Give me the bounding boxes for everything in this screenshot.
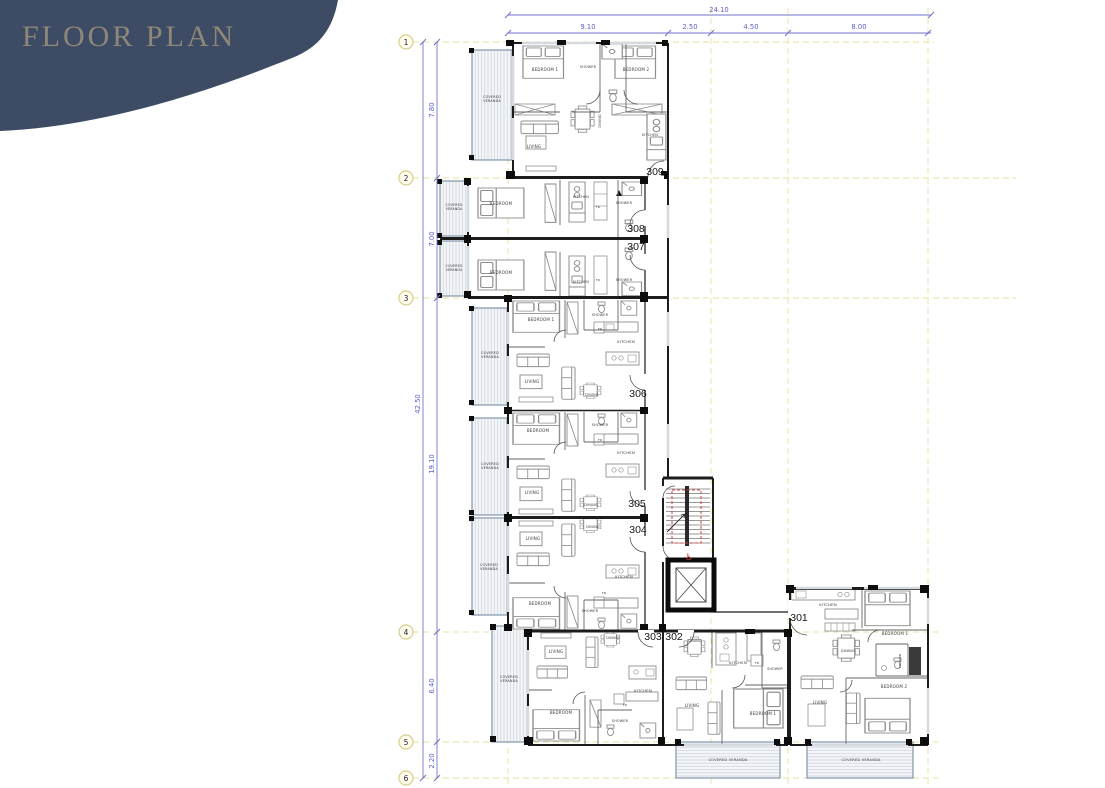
- unit-number-302: 302: [665, 631, 683, 643]
- room-label: SHOWER: [592, 313, 609, 317]
- unit-number-301: 301: [790, 612, 808, 624]
- room-label: BEDROOM 1: [750, 711, 777, 716]
- room-label: LIVING: [526, 536, 541, 541]
- room-label: BEDROOM 2: [623, 67, 650, 72]
- room-label: COVEREDVERANDA: [481, 351, 499, 359]
- room-label: COVEREDVERANDA: [500, 675, 518, 683]
- room-label: FR: [755, 661, 759, 665]
- room-label: LIVING: [813, 700, 828, 705]
- room-label: DINING: [606, 636, 620, 640]
- room-label: DINING: [841, 649, 855, 653]
- room-label: COVERED VERANDA: [841, 758, 880, 762]
- dimension-label: 4.50: [743, 23, 758, 31]
- room-label: SHOWER: [616, 278, 633, 282]
- room-label: COVEREDVERANDA: [480, 563, 498, 571]
- room-label: KITCHEN: [634, 688, 652, 693]
- room-label: LIVING: [685, 703, 700, 708]
- dimension-label: 24.10: [709, 6, 728, 14]
- dimension-label: 2.20: [428, 753, 436, 768]
- room-label: SHOWER: [616, 201, 633, 205]
- room-label: KITCHEN: [819, 602, 837, 607]
- room-label: FR: [623, 703, 627, 707]
- room-label: SHOWER: [592, 423, 609, 427]
- room-label: DINING: [585, 393, 599, 397]
- dimension-label: 2.50: [682, 23, 697, 31]
- unit-number-303: 303: [644, 631, 662, 643]
- unit-number-305: 305: [628, 498, 646, 510]
- room-label: COVEREDVERANDA: [481, 462, 499, 470]
- room-label: DINING: [688, 639, 702, 643]
- wheelchair-accessible-icon: ♿: [685, 553, 693, 563]
- page-title: FLOOR PLAN: [22, 20, 282, 54]
- elevator: [668, 560, 714, 610]
- unit-number-306: 306: [629, 388, 647, 400]
- room-label: BEDROOM 1: [882, 631, 909, 636]
- room-label: KITCHEN: [615, 574, 633, 579]
- room-label: SHOWER: [898, 654, 902, 669]
- room-label: KITCHEN: [573, 195, 589, 199]
- room-label: LIVING: [549, 649, 564, 654]
- room-label: KITCHEN: [729, 660, 747, 665]
- room-label: DINING: [598, 114, 602, 128]
- room-label: COVEREDVERANDA: [446, 203, 464, 211]
- dimension-label: 19.10: [428, 454, 436, 473]
- room-label: BEDROOM: [527, 428, 550, 433]
- floor-plan-page: BEDROOM 1SHOWERBEDROOM 2COVEREDVERANDADI…: [0, 0, 1105, 788]
- grid-bubble-label-3: 3: [404, 294, 409, 303]
- room-label: FR: [602, 591, 606, 595]
- dimension-label: 7.00: [428, 231, 436, 246]
- dimension-label: 8.00: [851, 23, 866, 31]
- room-label: BEDROOM 1: [528, 317, 555, 322]
- room-label: BEDROOM: [550, 710, 573, 715]
- room-label: BEDROOM 2: [881, 684, 908, 689]
- title-blob: FLOOR PLAN: [0, 0, 400, 150]
- grid-bubble-label-2: 2: [404, 174, 409, 183]
- room-label: LIVING: [527, 144, 542, 149]
- room-label: DINING: [586, 525, 600, 529]
- room-label: BEDROOM 1: [532, 67, 559, 72]
- room-label: SHOWER: [580, 65, 597, 69]
- stair-stringer: [685, 486, 689, 546]
- unit-number-309: 309: [646, 166, 664, 178]
- grid-bubble-label-4: 4: [404, 628, 409, 637]
- room-label: KITCHEN: [617, 450, 635, 455]
- room-label: COVEREDVERANDA: [483, 95, 501, 103]
- room-label: KITCHEN: [573, 280, 589, 284]
- room-label: DINING: [584, 503, 598, 507]
- plan-icons: ♿: [685, 553, 693, 563]
- room-label: FR: [598, 438, 602, 442]
- unit-number-307: 307: [627, 241, 645, 253]
- dimension-label: 6.40: [428, 678, 436, 693]
- room-label: BEDROOM: [490, 270, 513, 275]
- room-label: KITCHEN: [617, 339, 635, 344]
- room-label: FR: [596, 278, 600, 282]
- room-label: SHOWER: [767, 667, 783, 671]
- unit-number-308: 308: [627, 223, 645, 235]
- room-label: LIVING: [525, 379, 540, 384]
- dimension-label: 9.10: [580, 23, 595, 31]
- grid-bubble-label-5: 5: [404, 738, 409, 747]
- grid-bubble-label-1: 1: [404, 38, 409, 47]
- room-label: FR: [598, 327, 602, 331]
- dimension-label: 7.80: [428, 102, 436, 117]
- unit-number-304: 304: [629, 524, 647, 536]
- room-label: LIVING: [525, 490, 540, 495]
- room-label: KITCHEN: [642, 133, 658, 137]
- room-label: FR: [596, 205, 600, 209]
- room-label: SHOWER: [582, 609, 599, 613]
- room-label: COVEREDVERANDA: [446, 264, 464, 272]
- room-label: COVERED VERANDA: [708, 758, 747, 762]
- room-label: BEDROOM: [490, 201, 513, 206]
- grid-bubble-label-6: 6: [404, 774, 409, 783]
- grid-bubbles: 123456: [399, 35, 413, 785]
- dimension-label: 42.50: [414, 394, 422, 413]
- room-label: SHOWER: [612, 719, 629, 723]
- room-label: BEDROOM: [529, 601, 552, 606]
